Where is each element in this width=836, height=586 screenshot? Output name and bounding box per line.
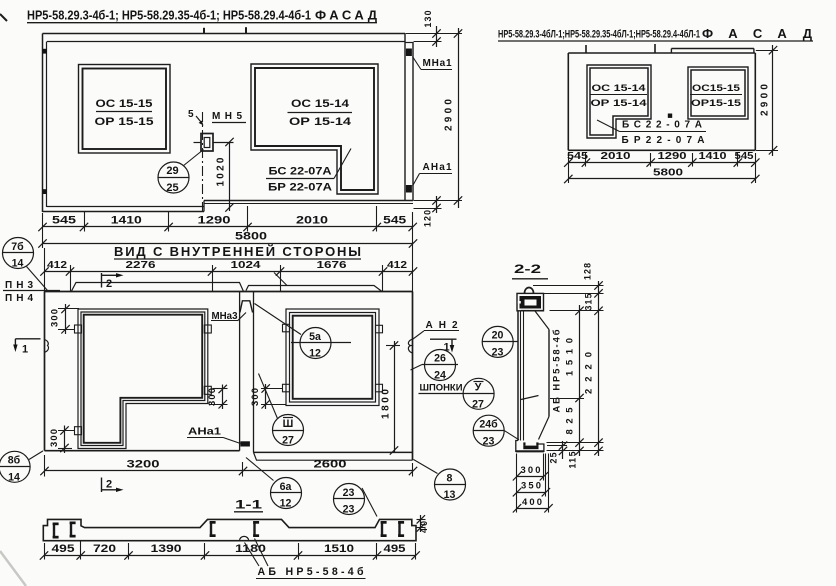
svg-text:ОС 15-14: ОС 15-14 [592, 82, 647, 93]
svg-text:12: 12 [280, 498, 292, 510]
svg-text:2: 2 [106, 479, 112, 491]
svg-text:300: 300 [249, 388, 260, 406]
svg-text:2010: 2010 [296, 215, 328, 227]
svg-text:128: 128 [583, 263, 593, 280]
svg-text:300: 300 [521, 464, 541, 475]
svg-text:БС 22-07А: БС 22-07А [269, 166, 332, 178]
svg-text:2-2: 2-2 [514, 262, 542, 276]
svg-text:ОР 15-15: ОР 15-15 [95, 116, 154, 128]
svg-text:14: 14 [8, 472, 20, 484]
svg-text:2600: 2600 [314, 459, 347, 471]
svg-text:1390: 1390 [151, 543, 182, 555]
svg-text:1410: 1410 [699, 151, 728, 162]
svg-text:495: 495 [52, 543, 75, 555]
svg-text:412: 412 [47, 260, 68, 271]
svg-text:5800: 5800 [235, 231, 267, 243]
svg-text:2276: 2276 [126, 260, 157, 271]
svg-text:545: 545 [383, 215, 406, 227]
svg-text:130: 130 [423, 10, 433, 27]
svg-text:13: 13 [444, 489, 456, 501]
svg-text:24: 24 [434, 370, 446, 382]
svg-text:6а: 6а [280, 481, 292, 493]
svg-text:300: 300 [206, 388, 217, 406]
svg-text:1410: 1410 [111, 215, 142, 227]
svg-text:300: 300 [48, 429, 59, 447]
svg-text:412: 412 [387, 260, 408, 271]
svg-text:5: 5 [188, 109, 194, 120]
svg-text:1510: 1510 [324, 543, 354, 555]
svg-text:1676: 1676 [317, 260, 348, 271]
svg-text:АНа1: АНа1 [423, 162, 452, 173]
svg-text:МНа1: МНа1 [423, 58, 452, 69]
svg-text:25: 25 [549, 452, 559, 463]
svg-text:ОС 15-14: ОС 15-14 [291, 98, 349, 110]
svg-text:720: 720 [93, 543, 116, 555]
svg-text:У: У [475, 382, 482, 394]
svg-text:495: 495 [384, 543, 406, 555]
svg-text:ФАСАД: ФАСАД [315, 8, 378, 23]
svg-text:АН2: АН2 [426, 320, 458, 331]
svg-text:5800: 5800 [653, 168, 684, 179]
svg-text:14: 14 [12, 258, 24, 270]
svg-text:1020: 1020 [216, 157, 227, 186]
svg-text:120: 120 [423, 210, 433, 227]
svg-text:ШПОНКИ: ШПОНКИ [420, 383, 463, 393]
svg-text:24б: 24б [479, 419, 498, 431]
svg-text:1290: 1290 [198, 215, 231, 227]
svg-text:23: 23 [483, 436, 495, 448]
svg-text:ОС 15-15: ОС 15-15 [96, 98, 153, 110]
svg-text:АНа1: АНа1 [188, 427, 222, 438]
svg-text:Ш: Ш [283, 418, 294, 430]
svg-text:АБ НР5-58-4б: АБ НР5-58-4б [551, 329, 562, 412]
svg-text:5а: 5а [309, 331, 321, 343]
svg-text:АБ НР5-58-4б: АБ НР5-58-4б [258, 566, 364, 578]
svg-text:25: 25 [166, 182, 178, 194]
svg-text:12: 12 [309, 348, 321, 360]
svg-text:1290: 1290 [658, 151, 688, 162]
svg-text:400: 400 [522, 496, 542, 507]
svg-text:26: 26 [434, 353, 446, 365]
svg-text:НР5-58.29.3-4бЛ-1;НР5-58.29.35: НР5-58.29.3-4бЛ-1;НР5-58.29.35-4бЛ-1;НР5… [498, 29, 700, 41]
svg-text:825: 825 [564, 408, 575, 435]
svg-text:1: 1 [22, 344, 28, 356]
svg-text:ОС15-15: ОС15-15 [692, 82, 740, 93]
svg-text:НР5-58.29.3-4б-1; НР5-58.29.35: НР5-58.29.3-4б-1; НР5-58.29.35-4б-1; НР5… [27, 9, 311, 23]
svg-text:23: 23 [492, 347, 504, 359]
svg-text:27: 27 [282, 435, 294, 447]
svg-text:20: 20 [492, 330, 504, 342]
svg-text:23: 23 [343, 487, 355, 499]
svg-text:8б: 8б [8, 455, 21, 467]
svg-text:8: 8 [447, 472, 453, 484]
svg-text:3200: 3200 [127, 459, 160, 471]
svg-text:545: 545 [735, 151, 754, 162]
svg-text:350: 350 [521, 480, 541, 491]
svg-text:ОР 15-14: ОР 15-14 [591, 97, 648, 108]
svg-text:27: 27 [472, 399, 484, 411]
svg-text:29: 29 [166, 165, 178, 177]
svg-text:МН5: МН5 [212, 111, 242, 122]
svg-text:23: 23 [343, 504, 355, 516]
svg-text:БР 22-07А: БР 22-07А [268, 182, 332, 194]
svg-text:ПН4: ПН4 [5, 293, 33, 304]
svg-text:ОР15-15: ОР15-15 [691, 97, 741, 108]
svg-text:300: 300 [49, 309, 60, 327]
svg-text:ОР 15-14: ОР 15-14 [289, 116, 351, 128]
svg-text:1-1: 1-1 [235, 498, 263, 512]
svg-text:115: 115 [568, 451, 578, 468]
svg-text:1024: 1024 [231, 260, 262, 271]
svg-text:315: 315 [584, 293, 594, 310]
svg-text:7б: 7б [11, 241, 24, 253]
svg-text:2: 2 [106, 278, 112, 290]
svg-text:545: 545 [567, 151, 589, 162]
svg-text:ПН3: ПН3 [5, 280, 33, 291]
svg-text:545: 545 [52, 215, 76, 227]
svg-text:2010: 2010 [601, 151, 632, 162]
